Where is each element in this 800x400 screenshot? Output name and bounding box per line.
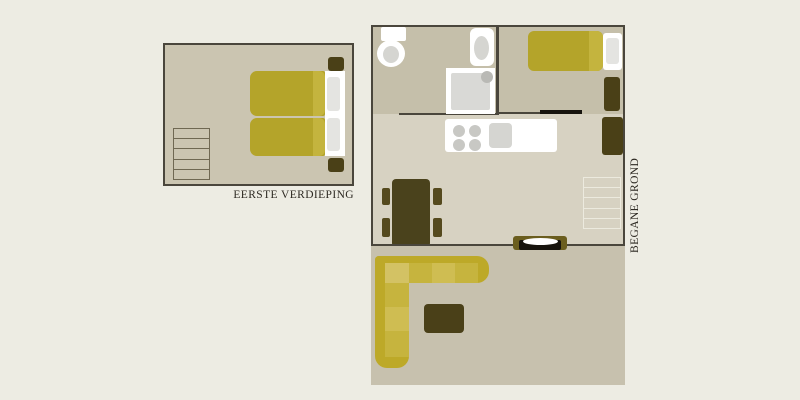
stair-tread bbox=[174, 160, 209, 170]
stair-tread bbox=[584, 209, 620, 219]
pillow bbox=[606, 38, 619, 64]
double-bed-blanket-top bbox=[250, 71, 325, 116]
nightstand bbox=[328, 57, 344, 71]
sofa-cushion bbox=[385, 263, 409, 283]
floor-plan-canvas: EERSTE VERDIEPING bbox=[0, 0, 800, 400]
sofa-cushion bbox=[385, 307, 409, 331]
stair-tread bbox=[174, 129, 209, 139]
ground-floor-room bbox=[371, 25, 625, 246]
stove-burner bbox=[469, 139, 481, 151]
coffee-table bbox=[424, 304, 464, 333]
dining-table bbox=[392, 179, 430, 246]
toilet-bowl-inner bbox=[383, 46, 399, 63]
hall-cupboard bbox=[602, 117, 623, 155]
stair-tread bbox=[174, 170, 209, 179]
blanket-fold bbox=[313, 71, 325, 116]
dining-chair bbox=[433, 188, 442, 205]
stair-tread bbox=[174, 149, 209, 159]
wall-bathroom-bedroom bbox=[496, 27, 499, 115]
stair-tread bbox=[584, 219, 620, 228]
sofa-cushion bbox=[455, 263, 478, 283]
blanket-fold bbox=[589, 31, 603, 71]
sofa-cushion bbox=[432, 263, 455, 283]
dining-chair bbox=[382, 188, 390, 205]
first-floor-stairs bbox=[173, 128, 210, 180]
stair-tread bbox=[584, 198, 620, 208]
double-bed-blanket-bottom bbox=[250, 118, 325, 156]
pillow bbox=[327, 118, 340, 151]
sink-bowl bbox=[474, 36, 489, 60]
sofa-cushion bbox=[385, 331, 409, 357]
pillow bbox=[327, 77, 340, 111]
stair-tread bbox=[584, 178, 620, 188]
bedroom-wardrobe bbox=[604, 77, 620, 111]
ground-floor-label: BEGANE GROND bbox=[629, 158, 647, 253]
stove-burner bbox=[469, 125, 481, 137]
front-door-swing bbox=[523, 238, 558, 245]
shower-head bbox=[481, 71, 493, 83]
stove-burner bbox=[453, 139, 465, 151]
front-door bbox=[513, 236, 567, 250]
stair-tread bbox=[584, 188, 620, 198]
sofa-cushion bbox=[409, 263, 432, 283]
ground-floor-stairs bbox=[583, 177, 621, 229]
stove-burner bbox=[453, 125, 465, 137]
dining-chair bbox=[433, 218, 442, 237]
single-bed-blanket bbox=[528, 31, 603, 71]
nightstand bbox=[328, 158, 344, 172]
blanket-fold bbox=[313, 118, 325, 156]
kitchen-sink bbox=[489, 123, 512, 148]
first-floor-room bbox=[163, 43, 354, 186]
bedroom-door bbox=[540, 110, 582, 114]
living-room bbox=[371, 246, 625, 385]
sofa-cushion bbox=[385, 283, 409, 307]
stair-tread bbox=[174, 139, 209, 149]
dining-chair bbox=[382, 218, 390, 237]
toilet-tank bbox=[381, 27, 406, 41]
first-floor-label: EERSTE VERDIEPING bbox=[163, 189, 354, 201]
